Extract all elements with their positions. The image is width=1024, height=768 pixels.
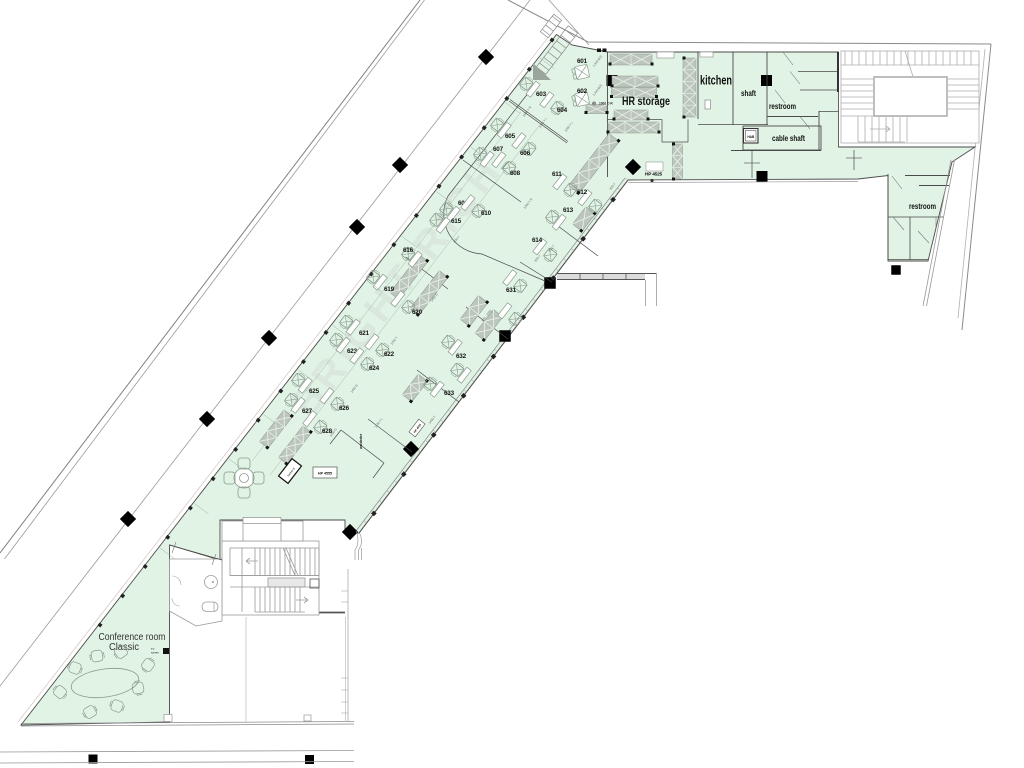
svg-text:kitchen: kitchen: [700, 74, 732, 88]
svg-text:619: 619: [384, 286, 395, 293]
svg-text:615: 615: [451, 218, 462, 225]
svg-text:633: 633: [444, 390, 455, 397]
svg-text:605: 605: [505, 133, 516, 140]
svg-text:604: 604: [557, 107, 568, 114]
svg-text:632: 632: [456, 353, 467, 360]
svg-text:626: 626: [339, 405, 350, 412]
svg-text:611: 611: [552, 171, 562, 178]
svg-text:616: 616: [403, 247, 414, 254]
svg-text:HP 4555: HP 4555: [318, 472, 332, 476]
svg-text:631: 631: [506, 287, 517, 294]
svg-text:HR storage: HR storage: [622, 94, 670, 108]
svg-text:606: 606: [520, 150, 531, 157]
svg-text:shaft: shaft: [741, 89, 756, 98]
svg-text:TV: TV: [151, 647, 155, 651]
svg-text:614: 614: [532, 237, 543, 244]
svg-text:608: 608: [510, 170, 521, 177]
svg-text:625: 625: [309, 388, 320, 395]
svg-text:restroom: restroom: [769, 102, 796, 111]
svg-text:Classic: Classic: [109, 642, 139, 653]
svg-text:HP 4525: HP 4525: [645, 172, 663, 177]
svg-text:613: 613: [563, 207, 574, 214]
svg-text:cable shaft: cable shaft: [772, 134, 805, 143]
svg-text:1000 C-R: 1000 C-R: [599, 102, 613, 106]
svg-text:602: 602: [577, 88, 588, 95]
svg-text:restroom: restroom: [909, 202, 936, 211]
svg-text:601: 601: [577, 58, 588, 65]
svg-text:612: 612: [577, 189, 588, 196]
svg-text:HAB: HAB: [747, 135, 755, 139]
svg-text:624: 624: [369, 365, 380, 372]
svg-text:screen: screen: [151, 651, 159, 655]
svg-text:621: 621: [359, 330, 370, 337]
svg-text:wardrobe: wardrobe: [359, 434, 363, 450]
svg-text:622: 622: [384, 351, 395, 358]
svg-text:620: 620: [412, 309, 423, 316]
svg-text:603: 603: [536, 91, 547, 98]
svg-text:610: 610: [481, 210, 492, 217]
